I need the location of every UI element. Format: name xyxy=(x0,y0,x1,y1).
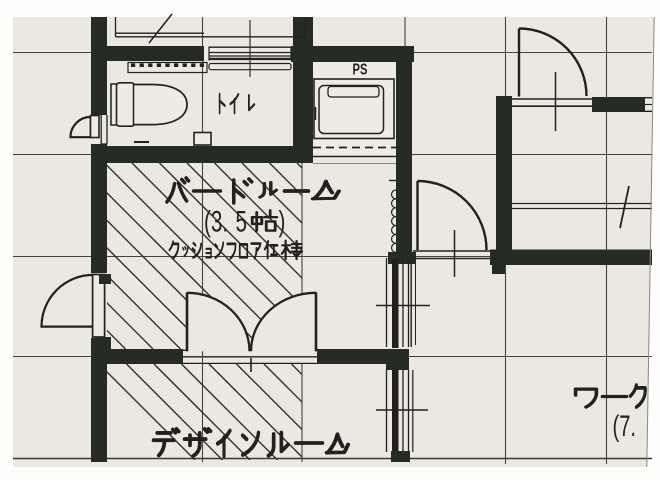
svg-text:5: 5 xyxy=(236,206,247,238)
svg-text:PS: PS xyxy=(353,61,368,78)
svg-text:): ) xyxy=(279,206,286,238)
svg-text:(3.: (3. xyxy=(204,206,228,238)
svg-text:(7.: (7. xyxy=(613,410,636,443)
